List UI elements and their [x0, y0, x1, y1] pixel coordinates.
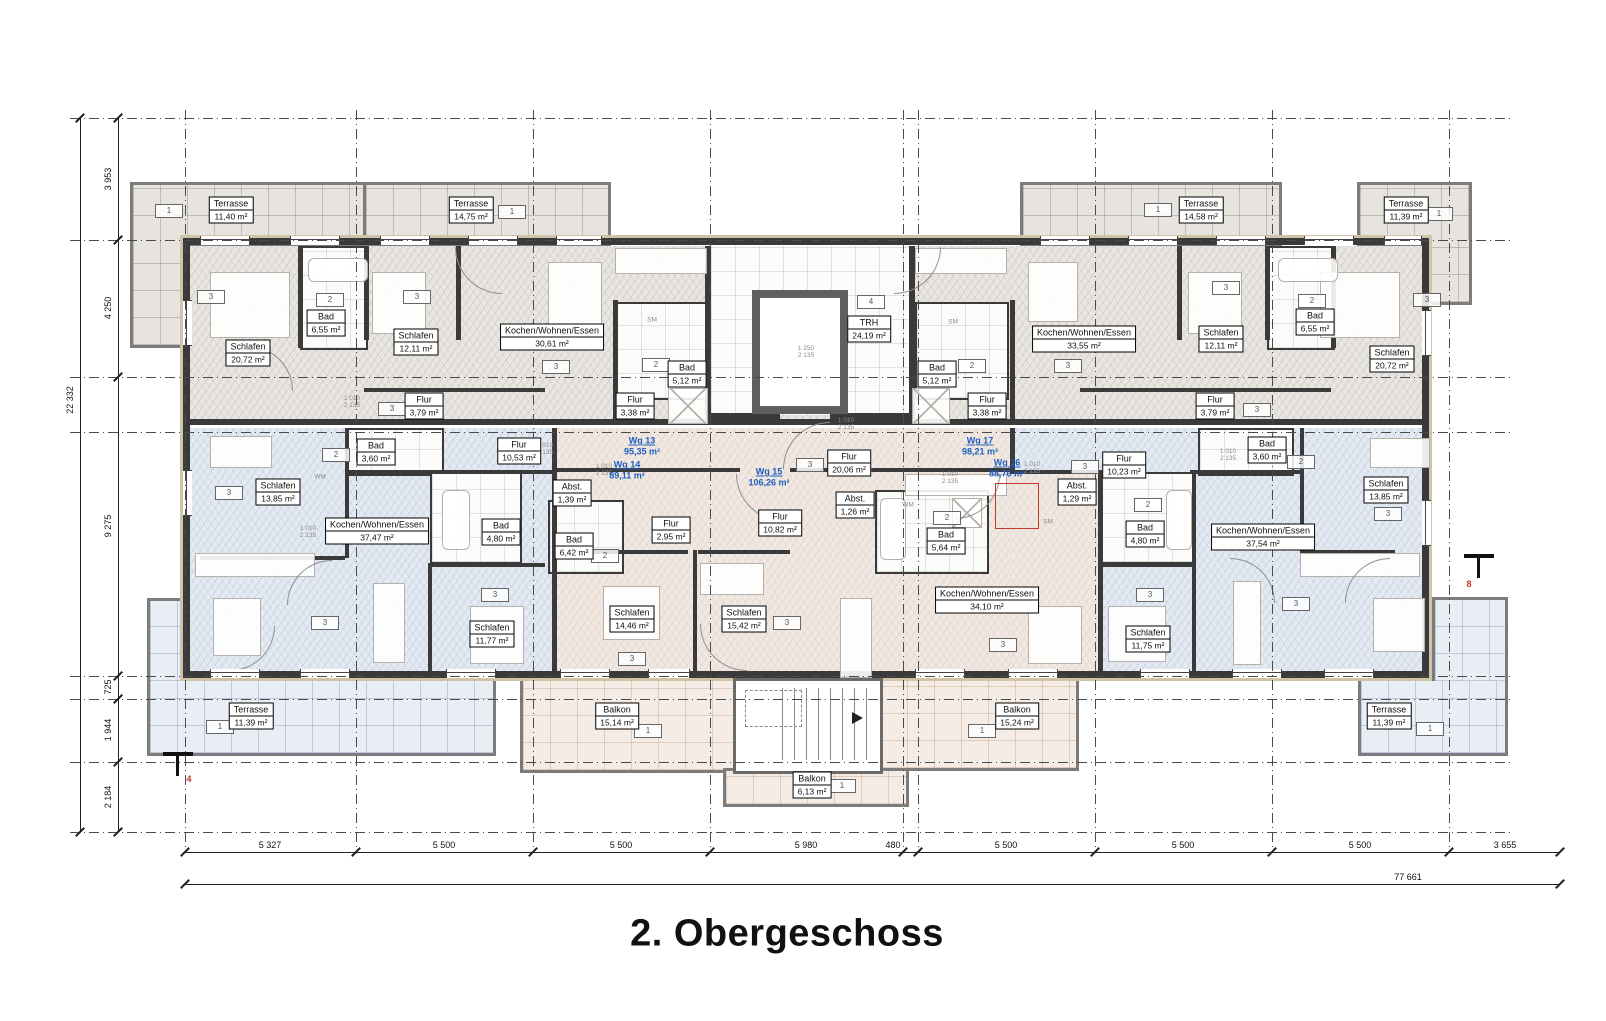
room-name: Bad	[358, 440, 395, 453]
appliance-label-wm: WM	[902, 502, 914, 509]
apartment-label: Wg 1798,21 m²	[962, 436, 998, 457]
wall	[1190, 470, 1300, 474]
appliance-label-sm: SM	[647, 317, 657, 324]
room-label: Schlafen15,42 m²	[721, 606, 766, 633]
room-area: 6,42 m²	[556, 547, 593, 559]
room-name: Bad	[669, 362, 706, 375]
dim-label: 5 500	[1349, 840, 1372, 850]
room-area: 11,39 m²	[230, 717, 273, 729]
drawing-title: 2. Obergeschoss	[630, 913, 944, 956]
terrace-top-left-leg	[130, 240, 191, 348]
grid-axis-h	[70, 118, 1510, 119]
dim-line-left-total	[80, 118, 81, 832]
grid-axis-v	[1449, 110, 1450, 852]
room-label: Kochen/Wohnen/Essen37,54 m²	[1211, 524, 1315, 551]
room-name: Schlafen	[1126, 627, 1169, 640]
room-area: 3,79 m²	[406, 407, 443, 419]
room-label: Flur2,95 m²	[652, 517, 691, 544]
wall	[1098, 563, 1196, 567]
room-name: Schlafen	[470, 622, 513, 635]
room-name: Abst.	[837, 493, 874, 506]
room-name: Terrasse	[1385, 198, 1428, 211]
room-area: 3,38 m²	[969, 407, 1006, 419]
tag-bath: 2	[316, 293, 344, 307]
room-name: Bad	[556, 534, 593, 547]
dim-label: 5 980	[795, 840, 818, 850]
room-label: Flur10,23 m²	[1102, 452, 1146, 479]
apartment-id: Wg 15	[748, 467, 789, 478]
room-name: Kochen/Wohnen/Essen	[936, 588, 1038, 601]
room-name: Terrasse	[1368, 704, 1411, 717]
dim-label: 3 953	[103, 168, 113, 191]
door-dim: 1 0102 135	[942, 471, 958, 485]
tag-room: 3	[989, 638, 1017, 652]
kitchen-counter	[195, 553, 315, 577]
door-dim-w: 1 010	[838, 417, 854, 424]
room-name: Bad	[1249, 438, 1286, 451]
tag-room: 3	[773, 616, 801, 630]
dim-label: 5 500	[433, 840, 456, 850]
room-area: 14,46 m²	[610, 620, 653, 632]
grid-axis-h	[70, 240, 1510, 241]
room-name: Flur	[759, 511, 801, 524]
grid-axis-v	[533, 110, 534, 852]
dim-label: 1 944	[103, 719, 113, 742]
room-label-stairwell: TRH24,19 m²	[847, 316, 891, 343]
room-name: Kochen/Wohnen/Essen	[1212, 525, 1314, 538]
room-name: Balkon	[596, 704, 638, 717]
apartment-id: Wg 17	[962, 436, 998, 447]
window	[1422, 500, 1431, 546]
balcony-label: Balkon15,24 m²	[995, 703, 1039, 730]
room-name: Flur	[1197, 394, 1234, 407]
room-name: Schlafen	[1370, 347, 1413, 360]
door-dim-h: 2 135	[838, 424, 854, 431]
wall	[1265, 246, 1270, 340]
sofa	[373, 583, 405, 663]
room-area: 3,38 m²	[617, 407, 654, 419]
room-name: Schlafen	[394, 330, 437, 343]
dim-line-left	[118, 118, 119, 832]
room-name: Flur	[617, 394, 654, 407]
terrace-bottom-left	[147, 678, 496, 756]
wall	[1192, 470, 1196, 672]
tag-outdoor: 1	[1416, 722, 1444, 736]
grid-axis-v	[710, 110, 711, 852]
dim-line-bottom-total	[185, 884, 1560, 885]
tag-room: 3	[378, 402, 406, 416]
tag-bath: 2	[322, 448, 350, 462]
tag-outdoor: 1	[1425, 207, 1453, 221]
door-dim: 1 0102 135	[344, 395, 360, 409]
room-name: Schlafen	[1364, 478, 1407, 491]
room-label: Bad5,64 m²	[927, 528, 966, 555]
room-label: Flur10,53 m²	[497, 438, 541, 465]
room-name: Abst.	[554, 481, 591, 494]
dim-label: 2 184	[103, 786, 113, 809]
detail-highlight-box	[995, 483, 1039, 529]
bathtub	[1278, 258, 1338, 282]
tag-room: 3	[1282, 597, 1310, 611]
room-name: Terrasse	[450, 198, 493, 211]
room-name: Kochen/Wohnen/Essen	[326, 519, 428, 532]
room-name: Balkon	[996, 704, 1038, 717]
room-area: 1,39 m²	[554, 494, 591, 506]
tag-room: 3	[542, 360, 570, 374]
dining-table	[1028, 606, 1082, 664]
tag-room: 3	[1054, 359, 1082, 373]
wall	[698, 550, 790, 554]
dim-label: 9 275	[103, 515, 113, 538]
apartment-id: Wg 13	[624, 436, 660, 447]
room-name: Bad	[483, 520, 520, 533]
tag-bath: 2	[933, 511, 961, 525]
room-name: Flur	[653, 518, 690, 531]
dim-label-total: 22 332	[65, 386, 75, 414]
room-label: Schlafen20,72 m²	[225, 340, 270, 367]
tag-room: 3	[311, 616, 339, 630]
room-area: 3,79 m²	[1197, 407, 1234, 419]
room-label: Kochen/Wohnen/Essen33,55 m²	[1032, 326, 1136, 353]
dim-label: 725	[103, 679, 113, 694]
room-area: 4,80 m²	[483, 533, 520, 545]
room-name: Balkon	[794, 773, 831, 786]
wall	[1177, 246, 1182, 340]
shower	[668, 388, 708, 424]
wall	[1010, 300, 1015, 422]
dim-line-bottom	[185, 852, 1560, 853]
room-area: 1,26 m²	[837, 506, 874, 518]
door-dim-h: 2 135	[1024, 468, 1040, 475]
tag-bath: 2	[958, 359, 986, 373]
apartment-area: 98,21 m²	[962, 446, 998, 457]
room-area: 30,61 m²	[501, 338, 603, 350]
room-label: Bad6,55 m²	[307, 310, 346, 337]
balcony-label: Balkon15,14 m²	[595, 703, 639, 730]
dim-label: 5 500	[995, 840, 1018, 850]
room-name: Bad	[1297, 310, 1334, 323]
room-area: 37,54 m²	[1212, 538, 1314, 550]
dining-table	[1373, 598, 1425, 652]
grid-axis-v	[356, 110, 357, 852]
room-area: 11,75 m²	[1126, 640, 1169, 652]
tag-outdoor: 1	[155, 204, 183, 218]
room-area: 5,12 m²	[669, 375, 706, 387]
room-name: Terrasse	[1180, 198, 1223, 211]
tag-bath: 2	[1287, 455, 1315, 469]
terrace-label: Terrasse11,39 m²	[1367, 703, 1412, 730]
room-area: 37,47 m²	[326, 532, 428, 544]
elevator-dim: 1 2502 135	[798, 345, 814, 359]
room-area: 3,60 m²	[358, 453, 395, 465]
door-dim-w: 1 250	[798, 345, 814, 352]
wall	[298, 246, 303, 348]
room-label: Schlafen13,85 m²	[1363, 477, 1408, 504]
room-area: 10,53 m²	[498, 452, 540, 464]
room-name: Schlafen	[610, 607, 653, 620]
appliance-label-wm: WM	[314, 474, 326, 481]
door-dim-w: 1 010	[300, 525, 316, 532]
tag-room: 3	[1413, 293, 1441, 307]
room-name: Schlafen	[256, 480, 299, 493]
tag-room: 3	[197, 290, 225, 304]
grid-axis-v	[903, 110, 904, 852]
room-label: Flur3,79 m²	[1196, 393, 1235, 420]
tag-room: 3	[1212, 281, 1240, 295]
dim-label: 3 655	[1494, 840, 1517, 850]
room-name: Abst.	[1059, 480, 1096, 493]
room-area: 11,39 m²	[1368, 717, 1411, 729]
tag-outdoor: 1	[1144, 203, 1172, 217]
wall	[1098, 470, 1103, 672]
room-label: Bad3,60 m²	[357, 439, 396, 466]
room-name: Bad	[928, 529, 965, 542]
room-label: Abst.1,26 m²	[836, 492, 875, 519]
kitchen-counter	[615, 248, 707, 274]
grid-axis-v	[185, 110, 186, 852]
room-name: Terrasse	[210, 198, 253, 211]
room-area: 6,55 m²	[308, 324, 345, 336]
tag-room: 3	[215, 486, 243, 500]
room-area: 5,64 m²	[928, 542, 965, 554]
room-label: Flur3,38 m²	[616, 393, 655, 420]
terrace-label: Terrasse11,39 m²	[229, 703, 274, 730]
door-dim-w: 1 010	[1220, 448, 1236, 455]
tag-room: 3	[1243, 403, 1271, 417]
room-label: Schlafen12,11 m²	[393, 329, 438, 356]
bed	[210, 272, 290, 338]
floor-plan-canvas: 3 953 4 250 9 275 725 1 944 2 184 22 332…	[0, 0, 1606, 1021]
room-area: 24,19 m²	[848, 330, 890, 342]
room-name: Flur	[498, 439, 540, 452]
apartment-label: Wg 1688,76 m²	[989, 458, 1025, 479]
stair-up-run	[745, 690, 802, 727]
room-name: Bad	[308, 311, 345, 324]
room-label: Abst.1,39 m²	[553, 480, 592, 507]
wall	[1080, 388, 1331, 392]
apartment-label: Wg 15106,26 m²	[748, 467, 789, 488]
room-name: Bad	[919, 362, 956, 375]
dim-label: 5 500	[610, 840, 633, 850]
room-name: Bad	[1127, 522, 1164, 535]
room-area: 20,72 m²	[226, 354, 269, 366]
room-area: 1,29 m²	[1059, 493, 1096, 505]
apartment-area: 89,11 m²	[609, 470, 645, 481]
room-area: 33,55 m²	[1033, 340, 1135, 352]
room-label: Flur3,38 m²	[968, 393, 1007, 420]
grid-axis-h	[70, 699, 1510, 700]
wall	[364, 388, 545, 392]
room-label: Bad4,80 m²	[1126, 521, 1165, 548]
wall	[428, 565, 432, 672]
room-area: 15,24 m²	[996, 717, 1038, 729]
room-label: Schlafen13,85 m²	[255, 479, 300, 506]
room-area: 14,58 m²	[1180, 211, 1223, 223]
room-name: Terrasse	[230, 704, 273, 717]
door-dim-h: 2 135	[1220, 455, 1236, 462]
tag-outdoor: 1	[828, 779, 856, 793]
apartment-area: 95,35 m²	[624, 446, 660, 457]
terrace-label: Terrasse14,58 m²	[1179, 197, 1224, 224]
dim-label: 480	[885, 840, 900, 850]
apartment-id: Wg 16	[989, 458, 1025, 469]
window	[1422, 310, 1431, 356]
wall	[345, 470, 552, 474]
bathtub	[308, 258, 368, 282]
room-label: Bad4,80 m²	[482, 519, 521, 546]
appliance-label-sm: SM	[948, 319, 958, 326]
door-dim-w: 1 010	[1024, 461, 1040, 468]
room-name: TRH	[848, 317, 890, 330]
room-area: 10,23 m²	[1103, 466, 1145, 478]
door-dim: 1 0102 135	[1024, 461, 1040, 475]
room-label: Schlafen20,72 m²	[1369, 346, 1414, 373]
room-area: 12,11 m²	[394, 343, 437, 355]
tag-room: 3	[1071, 460, 1099, 474]
room-area: 15,42 m²	[722, 620, 765, 632]
bathtub	[442, 490, 470, 550]
tag-room: 3	[796, 458, 824, 472]
tag-bath: 2	[1298, 294, 1326, 308]
apartment-label: Wg 1395,35 m²	[624, 436, 660, 457]
room-label: Flur20,06 m²	[827, 450, 871, 477]
room-area: 15,14 m²	[596, 717, 638, 729]
apartment-area: 88,76 m²	[989, 468, 1025, 479]
dim-label: 4 250	[103, 297, 113, 320]
room-name: Schlafen	[226, 341, 269, 354]
room-area: 11,40 m²	[210, 211, 253, 223]
door-dim: 1 0102 135	[1220, 448, 1236, 462]
terrace-label: Terrasse11,39 m²	[1384, 197, 1429, 224]
tag-stair: 4	[857, 295, 885, 309]
room-name: Schlafen	[1199, 327, 1242, 340]
door-dim-w: 1 010	[344, 395, 360, 402]
room-area: 4,80 m²	[1127, 535, 1164, 547]
bathtub	[1166, 490, 1192, 550]
grid-axis-v	[918, 110, 919, 852]
room-label: Kochen/Wohnen/Essen30,61 m²	[500, 324, 604, 351]
door-dim-h: 2 135	[344, 402, 360, 409]
room-label: Abst.1,29 m²	[1058, 479, 1097, 506]
room-area: 34,10 m²	[936, 601, 1038, 613]
tag-bath: 2	[591, 549, 619, 563]
section-marker-left-number: 4	[186, 774, 191, 784]
room-area: 11,77 m²	[470, 635, 513, 647]
room-area: 14,75 m²	[450, 211, 493, 223]
terrace-bottom-right-leg	[1432, 597, 1508, 681]
tag-outdoor: 1	[498, 205, 526, 219]
room-name: Kochen/Wohnen/Essen	[1033, 327, 1135, 340]
room-label: Flur3,79 m²	[405, 393, 444, 420]
tag-room: 3	[481, 588, 509, 602]
grid-axis-h	[70, 432, 1510, 433]
room-label: Bad5,12 m²	[668, 361, 707, 388]
grid-axis-h	[70, 832, 1510, 833]
room-area: 20,72 m²	[1370, 360, 1413, 372]
room-label: Bad3,60 m²	[1248, 437, 1287, 464]
grid-axis-h	[70, 676, 1510, 677]
room-name: Kochen/Wohnen/Essen	[501, 325, 603, 338]
wall	[190, 419, 1426, 425]
terrace-label: Terrasse14,75 m²	[449, 197, 494, 224]
balcony-label: Balkon6,13 m²	[793, 772, 832, 799]
dining-table	[548, 262, 602, 326]
room-name: Flur	[828, 451, 870, 464]
room-area: 2,95 m²	[653, 531, 690, 543]
room-label: Schlafen11,75 m²	[1125, 626, 1170, 653]
door-dim-h: 2 135	[798, 352, 814, 359]
room-label: Schlafen11,77 m²	[469, 621, 514, 648]
room-name: Flur	[969, 394, 1006, 407]
room-area: 3,60 m²	[1249, 451, 1286, 463]
room-label: Kochen/Wohnen/Essen34,10 m²	[935, 587, 1039, 614]
tag-room: 3	[1374, 507, 1402, 521]
room-area: 12,11 m²	[1199, 340, 1242, 352]
grid-axis-h	[70, 377, 1510, 378]
grid-axis-h	[70, 762, 1510, 763]
room-area: 10,82 m²	[759, 524, 801, 536]
section-marker-right-number: 8	[1466, 579, 1471, 589]
section-marker-left-stem	[176, 756, 179, 776]
room-label: Flur10,82 m²	[758, 510, 802, 537]
dining-table	[1028, 262, 1078, 322]
dim-label: 5 327	[259, 840, 282, 850]
stair-direction-arrow	[852, 712, 863, 724]
room-name: Flur	[406, 394, 443, 407]
room-label: Kochen/Wohnen/Essen37,47 m²	[325, 518, 429, 545]
room-label: Bad5,12 m²	[918, 361, 957, 388]
bed	[1370, 438, 1430, 468]
room-label: Bad6,42 m²	[555, 533, 594, 560]
room-label: Schlafen12,11 m²	[1198, 326, 1243, 353]
wall	[428, 563, 545, 567]
room-label: Bad6,55 m²	[1296, 309, 1335, 336]
room-area: 13,85 m²	[256, 493, 299, 505]
door-dim: 1 0102 135	[300, 525, 316, 539]
apartment-label: Wg 1489,11 m²	[609, 460, 645, 481]
grid-axis-v	[1272, 110, 1273, 852]
room-area: 11,39 m²	[1385, 211, 1428, 223]
sofa	[840, 598, 872, 678]
tag-room: 3	[403, 290, 431, 304]
dim-label-total: 77 661	[1394, 872, 1422, 882]
tag-bath: 2	[642, 358, 670, 372]
apartment-area: 106,26 m²	[748, 477, 789, 488]
room-area: 5,12 m²	[919, 375, 956, 387]
door-dim-w: 1 010	[942, 471, 958, 478]
door-dim-h: 2 135	[942, 478, 958, 485]
room-area: 20,06 m²	[828, 464, 870, 476]
room-area: 13,85 m²	[1364, 491, 1407, 503]
dim-label: 5 500	[1172, 840, 1195, 850]
tag-room: 3	[618, 652, 646, 666]
room-label: Schlafen14,46 m²	[609, 606, 654, 633]
room-area: 6,55 m²	[1297, 323, 1334, 335]
tag-outdoor: 1	[968, 724, 996, 738]
door-dim: 1 0102 135	[838, 417, 854, 431]
wall	[552, 468, 740, 472]
tag-bath: 2	[1134, 498, 1162, 512]
bed	[210, 436, 272, 468]
appliance-label-sm: SM	[1043, 519, 1053, 526]
door-dim-h: 2 135	[300, 532, 316, 539]
apartment-id: Wg 14	[609, 460, 645, 471]
room-area: 6,13 m²	[794, 786, 831, 798]
wall	[693, 550, 697, 672]
tag-room: 3	[1136, 588, 1164, 602]
terrace-label: Terrasse11,40 m²	[209, 197, 254, 224]
room-name: Schlafen	[722, 607, 765, 620]
